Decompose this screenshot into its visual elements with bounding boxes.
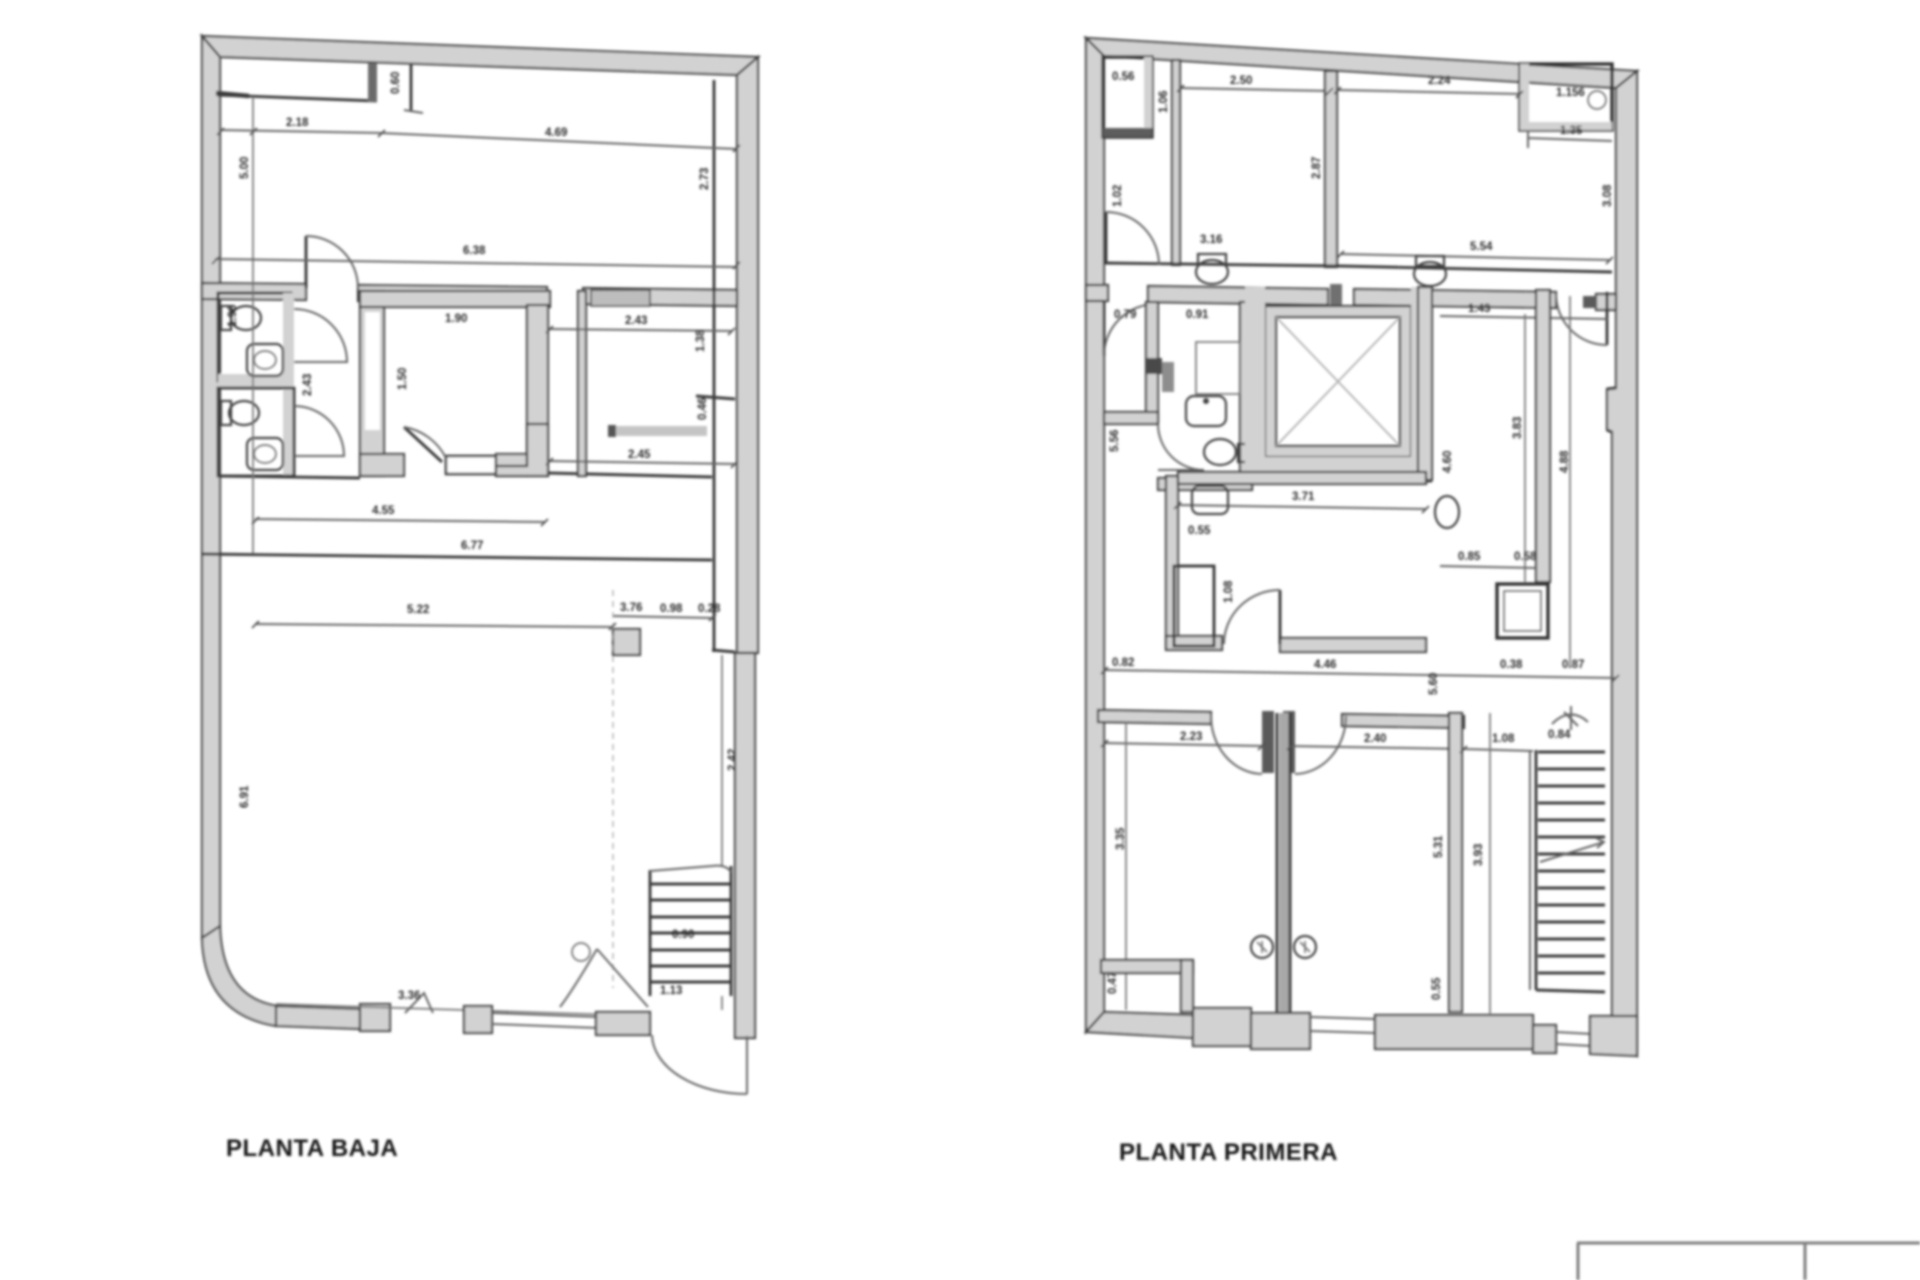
svg-text:5.31: 5.31 bbox=[1433, 835, 1445, 858]
svg-text:1.13: 1.13 bbox=[660, 985, 682, 997]
svg-text:0.90: 0.90 bbox=[672, 929, 694, 941]
svg-text:6.77: 6.77 bbox=[461, 540, 483, 552]
svg-text:2.50: 2.50 bbox=[1230, 75, 1252, 87]
svg-text:0.28: 0.28 bbox=[698, 603, 721, 615]
svg-text:PLANTA BAJA: PLANTA BAJA bbox=[226, 1135, 398, 1162]
svg-text:3.36: 3.36 bbox=[398, 990, 420, 1002]
svg-text:0.79: 0.79 bbox=[1114, 309, 1136, 321]
svg-text:0.38: 0.38 bbox=[1500, 659, 1523, 671]
svg-text:1.38: 1.38 bbox=[695, 329, 707, 352]
svg-text:1.35: 1.35 bbox=[1560, 125, 1583, 137]
svg-text:1.08: 1.08 bbox=[1492, 733, 1515, 745]
svg-text:5.54: 5.54 bbox=[1470, 241, 1493, 253]
svg-text:2.87: 2.87 bbox=[1311, 157, 1323, 179]
svg-text:1.06: 1.06 bbox=[1158, 91, 1170, 113]
svg-text:1.50: 1.50 bbox=[397, 368, 409, 390]
svg-text:4.55: 4.55 bbox=[372, 505, 395, 517]
svg-text:1.43: 1.43 bbox=[1468, 303, 1490, 315]
svg-text:3.16: 3.16 bbox=[1200, 234, 1222, 246]
svg-text:1.90: 1.90 bbox=[445, 313, 467, 325]
svg-text:PLANTA PRIMERA: PLANTA PRIMERA bbox=[1119, 1139, 1338, 1166]
svg-text:2.24: 2.24 bbox=[1428, 75, 1451, 87]
svg-text:2.42: 2.42 bbox=[727, 749, 739, 771]
svg-text:3.83: 3.83 bbox=[1512, 417, 1524, 439]
svg-text:0.85: 0.85 bbox=[1458, 551, 1481, 563]
svg-text:1.156: 1.156 bbox=[1556, 87, 1585, 99]
svg-text:5.00: 5.00 bbox=[239, 157, 251, 179]
svg-text:5.56: 5.56 bbox=[1109, 430, 1121, 452]
svg-text:6.38: 6.38 bbox=[463, 245, 486, 257]
svg-text:2.73: 2.73 bbox=[699, 168, 711, 190]
svg-text:0.47: 0.47 bbox=[1107, 972, 1119, 994]
svg-text:1.08: 1.08 bbox=[1223, 580, 1235, 603]
svg-text:1.96: 1.96 bbox=[227, 305, 239, 327]
svg-text:2.40: 2.40 bbox=[1364, 733, 1386, 745]
svg-text:0.82: 0.82 bbox=[1112, 657, 1134, 669]
svg-text:2.43: 2.43 bbox=[302, 374, 314, 396]
svg-text:1.02: 1.02 bbox=[1112, 185, 1124, 207]
svg-text:0.91: 0.91 bbox=[1186, 309, 1209, 321]
svg-text:0.98: 0.98 bbox=[660, 603, 683, 615]
svg-text:2.45: 2.45 bbox=[628, 449, 651, 461]
svg-text:0.87: 0.87 bbox=[1562, 659, 1584, 671]
svg-text:4.60: 4.60 bbox=[1442, 451, 1454, 473]
svg-text:3.71: 3.71 bbox=[1292, 491, 1315, 503]
svg-text:5.22: 5.22 bbox=[407, 604, 429, 616]
svg-text:0.46: 0.46 bbox=[697, 398, 709, 420]
svg-text:4.88: 4.88 bbox=[1559, 450, 1571, 473]
svg-text:0.84: 0.84 bbox=[1548, 729, 1571, 741]
svg-text:0.55: 0.55 bbox=[1188, 525, 1211, 537]
svg-text:3.08: 3.08 bbox=[1602, 184, 1614, 207]
svg-text:6.91: 6.91 bbox=[239, 785, 251, 808]
svg-text:2.43: 2.43 bbox=[625, 315, 647, 327]
svg-text:0.60: 0.60 bbox=[390, 72, 402, 94]
svg-text:0.55: 0.55 bbox=[1431, 977, 1443, 1000]
svg-text:5.60: 5.60 bbox=[1428, 673, 1440, 695]
svg-text:2.18: 2.18 bbox=[286, 117, 309, 129]
svg-text:3.93: 3.93 bbox=[1473, 844, 1485, 866]
svg-text:2.23: 2.23 bbox=[1180, 731, 1202, 743]
svg-text:4.46: 4.46 bbox=[1314, 659, 1336, 671]
svg-text:0.58: 0.58 bbox=[1514, 551, 1537, 563]
svg-text:0.56: 0.56 bbox=[1112, 71, 1134, 83]
svg-text:4.69: 4.69 bbox=[545, 127, 567, 139]
svg-text:3.76: 3.76 bbox=[620, 602, 642, 614]
